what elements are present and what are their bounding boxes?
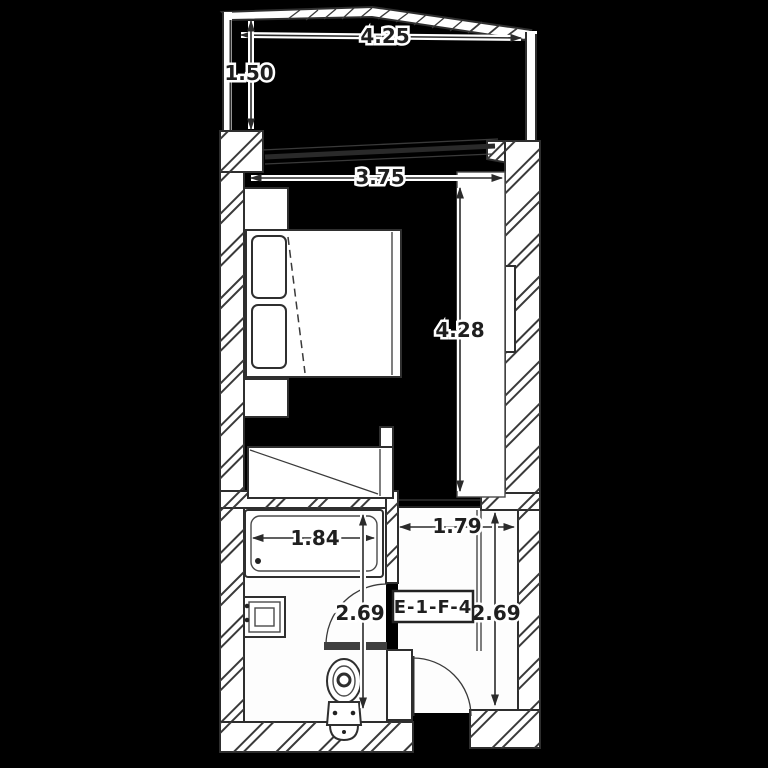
floor-plan: 4.25 1.50	[0, 0, 768, 768]
washbasin	[244, 597, 285, 637]
dim-room-width-label: 3.75	[355, 165, 404, 189]
dim-room-length-label: 4.28	[435, 318, 484, 342]
unit-label-text: E-1-F-4	[394, 597, 473, 618]
left-wall	[220, 131, 244, 752]
balcony-side-right	[525, 31, 537, 148]
entry-door-pier	[387, 650, 412, 720]
right-wall-hall	[518, 500, 540, 718]
bathroom-door-leaf	[324, 642, 387, 650]
double-bed	[246, 230, 401, 377]
dim-hall-length-label: 2.69	[471, 601, 520, 625]
bottom-wall-bathroom	[220, 722, 413, 752]
dim-bathtub-length-label: 1.84	[290, 526, 339, 550]
nightstand-bottom	[244, 379, 288, 417]
desk	[248, 427, 393, 498]
dim-bathroom-length-label: 2.69	[335, 601, 384, 625]
unit-label: E-1-F-4	[393, 591, 473, 622]
bathroom-right-wall	[386, 491, 398, 583]
bottom-wall-entry	[470, 710, 540, 748]
wall-marker	[505, 266, 515, 352]
dim-hall-width-label: 1.79	[432, 514, 481, 538]
pillow	[252, 305, 286, 368]
dim-balcony-width-label: 4.25	[360, 24, 409, 48]
floor-plan-canvas: 4.25 1.50	[0, 0, 768, 768]
sliding-window	[262, 139, 498, 164]
pillow	[252, 236, 286, 298]
bedroom: 3.75 4.28	[244, 165, 505, 498]
nightstand-top	[244, 188, 288, 232]
window-wall-left-pier	[220, 131, 263, 172]
dim-balcony-depth-label: 1.50	[224, 61, 273, 85]
balcony: 4.25 1.50	[222, 7, 537, 148]
